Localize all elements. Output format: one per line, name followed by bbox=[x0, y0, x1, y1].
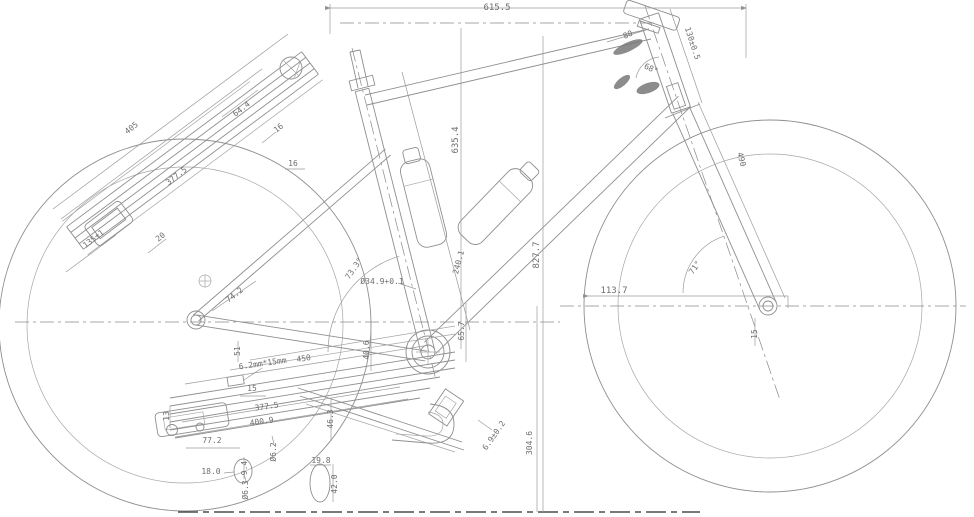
dimension-label: 450 bbox=[296, 353, 312, 364]
dimension-label: 42.0 bbox=[330, 474, 339, 493]
dimension-label: 827.7 bbox=[532, 241, 542, 268]
dimension-label: 615.5 bbox=[483, 3, 510, 13]
dimension-label: 51 bbox=[233, 346, 242, 356]
dimension-label: 9.4 bbox=[240, 461, 249, 476]
dimension-label: 405 bbox=[123, 120, 140, 136]
dimension-label: 13 bbox=[162, 411, 171, 421]
dimension-label: 400.9 bbox=[249, 415, 274, 427]
dimension-label: 18.0 bbox=[201, 467, 220, 476]
fork bbox=[665, 104, 777, 315]
dimension-label: 71° bbox=[687, 259, 703, 276]
bottom-bracket bbox=[406, 330, 450, 374]
dimension-label: 68° bbox=[643, 62, 660, 76]
dimension-label: 20 bbox=[154, 230, 167, 243]
cad-drawing-canvas: 615.5130±0.58068°635.4827.749071°113.740… bbox=[0, 0, 974, 517]
dimension-label: 635.4 bbox=[451, 126, 461, 153]
dimension-label: 80 bbox=[622, 29, 635, 41]
dimension-label: 490 bbox=[735, 151, 747, 167]
bicycle-frame-drawing: 615.5130±0.58068°635.4827.749071°113.740… bbox=[0, 0, 974, 517]
dimension-label: 377.5 bbox=[254, 400, 279, 412]
exploded-seatstay-view bbox=[62, 52, 322, 255]
bottle-seat-tube bbox=[395, 145, 448, 249]
dimension-label: 19.8 bbox=[311, 456, 330, 465]
dimension-label: 240.1 bbox=[451, 249, 466, 275]
dimension-label: 77.2 bbox=[202, 436, 221, 445]
dimension-label: 6.9±0.2 bbox=[481, 419, 508, 452]
bottle-down-tube bbox=[454, 156, 545, 249]
frame-tubes bbox=[193, 13, 690, 361]
dimension-label: 15 bbox=[750, 329, 759, 339]
dimension-label: 15 bbox=[247, 384, 257, 393]
dimension-label: 65.7 bbox=[457, 321, 466, 340]
dimension-label: 40.6 bbox=[362, 340, 371, 359]
dimension-label: Ø6.3 bbox=[240, 480, 250, 499]
dimension-label: 135±1 bbox=[81, 228, 106, 250]
dimension-label: 16 bbox=[288, 159, 298, 168]
dimension-label: Ø34.9+0.1 bbox=[360, 276, 404, 286]
dimension-label: 16 bbox=[272, 121, 285, 134]
dimension-label: 113.7 bbox=[600, 286, 627, 296]
dimension-label: 304.6 bbox=[525, 431, 534, 455]
dimension-labels: 615.5130±0.58068°635.4827.749071°113.740… bbox=[81, 3, 759, 500]
dimension-label: 74.2 bbox=[224, 285, 245, 304]
dimension-label: Ø6.2 bbox=[268, 442, 278, 461]
dimension-label: 46.3 bbox=[326, 409, 335, 428]
